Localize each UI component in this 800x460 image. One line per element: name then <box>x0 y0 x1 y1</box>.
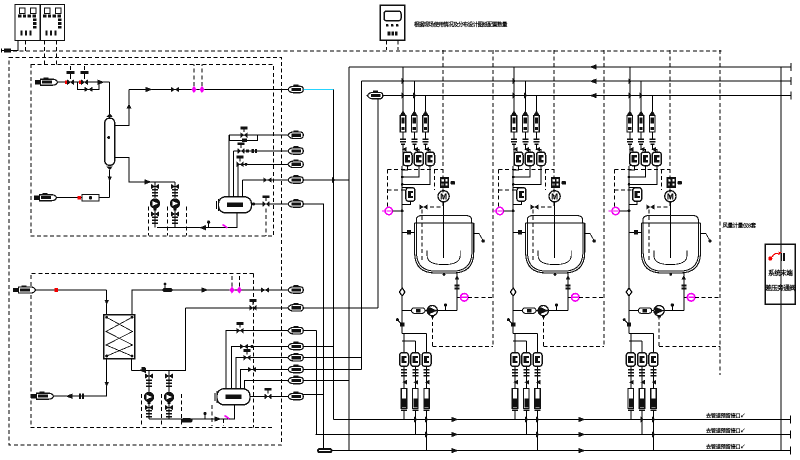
svg-text:去管道预留接口↙: 去管道预留接口↙ <box>706 427 745 435</box>
svg-text:去管道预留接口↙: 去管道预留接口↙ <box>706 412 745 420</box>
svg-text:风量计量仪8套: 风量计量仪8套 <box>723 222 757 230</box>
svg-text:系统末端: 系统末端 <box>768 268 793 277</box>
svg-text:根据现场使用情况及分布设计图纸配置数量: 根据现场使用情况及分布设计图纸配置数量 <box>414 20 508 28</box>
svg-text:差压旁通阀: 差压旁通阀 <box>765 283 795 292</box>
svg-text:去管道预留接口↙: 去管道预留接口↙ <box>706 443 745 451</box>
